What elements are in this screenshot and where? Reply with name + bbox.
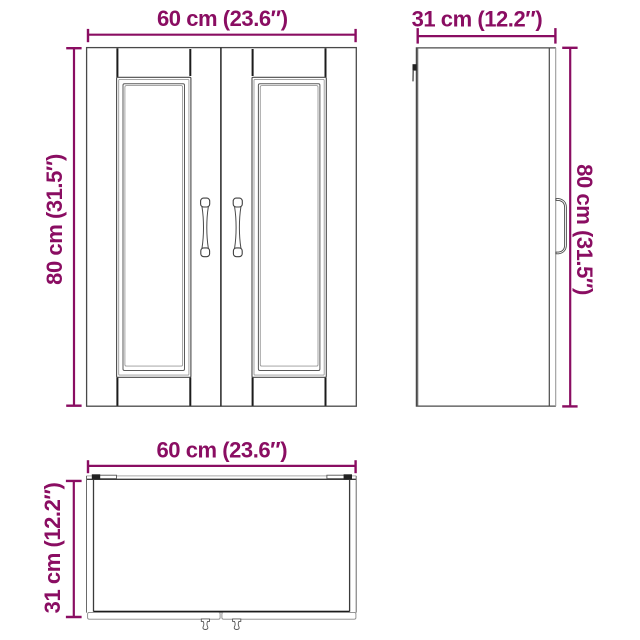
svg-text:31 cm (12.2″): 31 cm (12.2″) <box>40 483 65 614</box>
svg-text:80 cm (31.5″): 80 cm (31.5″) <box>572 164 597 295</box>
svg-text:60 cm (23.6″): 60 cm (23.6″) <box>157 6 288 31</box>
svg-text:60 cm (23.6″): 60 cm (23.6″) <box>156 438 287 463</box>
svg-text:80 cm (31.5″): 80 cm (31.5″) <box>42 154 67 285</box>
svg-text:31 cm (12.2″): 31 cm (12.2″) <box>412 7 543 32</box>
